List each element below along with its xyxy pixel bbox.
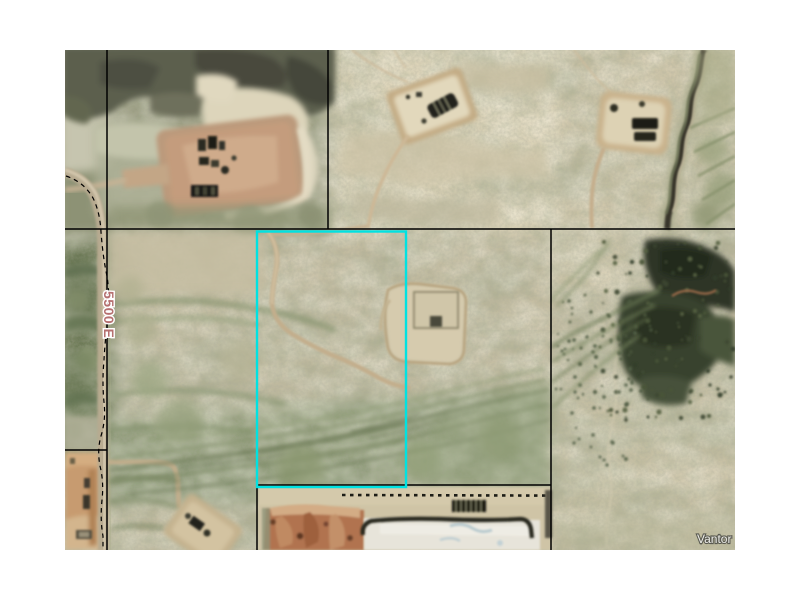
svg-text:5500 E: 5500 E [101,291,117,338]
svg-text:Vantor: Vantor [697,532,731,546]
